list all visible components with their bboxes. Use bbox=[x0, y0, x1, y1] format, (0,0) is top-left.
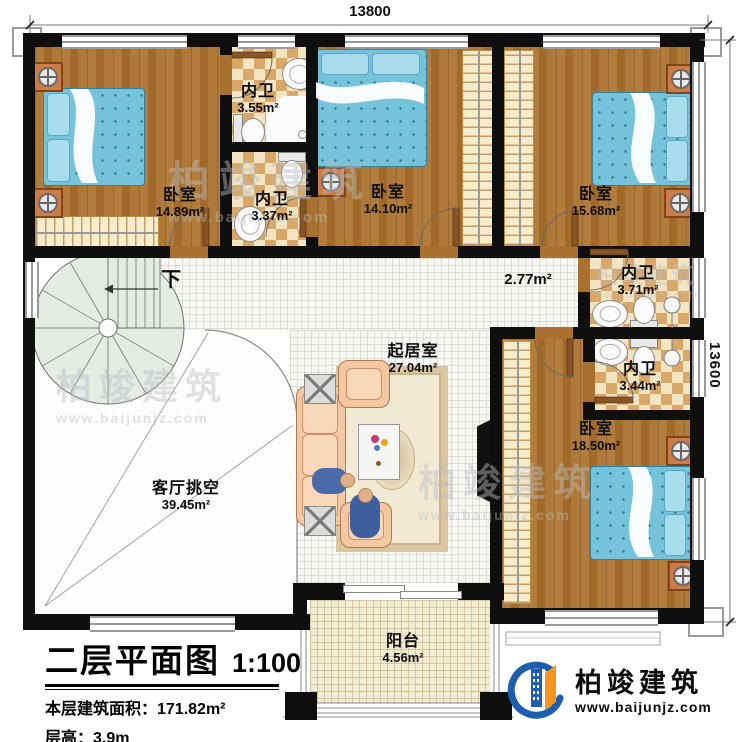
wall bbox=[232, 142, 306, 152]
nightstand bbox=[316, 167, 346, 197]
wall bbox=[306, 47, 318, 197]
wall bbox=[583, 410, 704, 420]
wall bbox=[578, 246, 590, 254]
brand-website: www.baijunjz.com bbox=[575, 699, 712, 715]
room-label-living: 起居室 27.04m² bbox=[387, 344, 438, 375]
side-table bbox=[304, 374, 336, 404]
door-threshold bbox=[420, 246, 458, 258]
living-void-area bbox=[33, 330, 297, 614]
window bbox=[90, 616, 235, 632]
wall bbox=[208, 246, 420, 258]
room-label-bath-b: 内卫 3.37m² bbox=[251, 192, 292, 223]
pillow bbox=[372, 53, 420, 75]
door-threshold bbox=[578, 254, 590, 292]
window bbox=[692, 478, 706, 560]
title-underline bbox=[45, 684, 279, 690]
drawing-scale: 1:100 bbox=[232, 648, 301, 679]
brand-name: 柏竣建筑 bbox=[575, 669, 712, 699]
watermark: 柏竣建筑 www.baijunjz.com bbox=[56, 358, 228, 426]
room-label-bath-a: 内卫 3.55m² bbox=[237, 84, 278, 115]
room-label-bedroom-top-right: 卧室 15.68m² bbox=[572, 187, 620, 218]
pillow bbox=[664, 514, 686, 556]
toilet bbox=[633, 296, 655, 324]
pillow bbox=[666, 96, 688, 138]
brand-logo-icon bbox=[505, 660, 567, 724]
wall bbox=[220, 47, 232, 55]
room-label-bath-d: 内卫 3.44m² bbox=[619, 362, 660, 393]
dimension-right: 13600 bbox=[706, 342, 723, 389]
wall bbox=[220, 95, 232, 246]
window bbox=[692, 62, 706, 212]
room-label-balcony: 阳台 4.56m² bbox=[382, 634, 423, 665]
person-head bbox=[358, 488, 373, 503]
window bbox=[545, 610, 658, 626]
sink bbox=[592, 300, 628, 328]
dimension-top: 13800 bbox=[330, 3, 410, 20]
floor-area-text: 本层建筑面积：171.82m² bbox=[45, 695, 301, 719]
window bbox=[345, 35, 468, 49]
wall bbox=[573, 327, 704, 339]
coffee-table bbox=[358, 424, 400, 480]
window-sill-ledge bbox=[506, 632, 660, 645]
pillow bbox=[47, 139, 70, 182]
room-label-bath-c: 内卫 3.71m² bbox=[617, 266, 658, 297]
brand-logo: 柏竣建筑 www.baijunjz.com bbox=[505, 660, 712, 724]
wall bbox=[492, 47, 504, 246]
drawing-title: 二层平面图 bbox=[45, 634, 220, 682]
room-label-bedroom-top-left: 卧室 14.89m² bbox=[156, 188, 204, 219]
floor-plan-canvas: 柏竣建筑 www.baijunjz.com 柏竣建筑 www.baijunjz.… bbox=[0, 0, 750, 742]
door-threshold bbox=[583, 362, 595, 402]
flower-decor bbox=[371, 435, 379, 443]
floor-height-text: 层高：3.9m bbox=[45, 724, 301, 742]
closet-bedroom-bottom-right bbox=[503, 340, 531, 604]
window bbox=[25, 262, 39, 318]
door-threshold bbox=[306, 197, 318, 237]
wall bbox=[23, 246, 170, 258]
table-decor bbox=[376, 461, 381, 466]
room-label-bedroom-bottom-right: 卧室 18.50m² bbox=[572, 422, 620, 453]
flower-decor bbox=[374, 445, 380, 451]
window bbox=[62, 35, 187, 49]
wall bbox=[458, 246, 540, 258]
closet-bedroom-top-right bbox=[504, 50, 534, 246]
pillow bbox=[47, 93, 70, 136]
armchair-cushion bbox=[346, 368, 382, 400]
wardrobe-bedroom-top-left bbox=[35, 216, 159, 248]
nightstand bbox=[33, 188, 63, 218]
room-label-hallway-area: 2.77m² bbox=[504, 272, 552, 289]
door-threshold bbox=[540, 246, 578, 258]
stair-down-label: 下 bbox=[161, 263, 181, 292]
person-head bbox=[340, 473, 355, 488]
pillow bbox=[321, 53, 369, 75]
window bbox=[543, 35, 660, 49]
nightstand bbox=[33, 62, 63, 92]
sliding-door-panel bbox=[343, 585, 405, 593]
wall bbox=[583, 339, 595, 362]
wall bbox=[578, 246, 704, 258]
window bbox=[692, 340, 706, 397]
door-threshold bbox=[220, 55, 232, 95]
door-threshold bbox=[170, 246, 208, 258]
wall bbox=[293, 583, 307, 630]
wall bbox=[578, 292, 590, 330]
door-threshold bbox=[535, 327, 573, 339]
window bbox=[238, 35, 295, 49]
room-label-void: 客厅挑空 39.45m² bbox=[152, 481, 220, 512]
room-label-bedroom-top-middle: 卧室 14.10m² bbox=[364, 185, 412, 216]
sliding-door-panel bbox=[400, 591, 462, 599]
closet-bedroom-top-middle bbox=[462, 50, 494, 246]
tv bbox=[477, 420, 490, 502]
wall bbox=[306, 237, 318, 246]
pillow bbox=[664, 470, 686, 512]
wall bbox=[23, 33, 35, 630]
window bbox=[692, 258, 706, 318]
side-table bbox=[304, 506, 336, 536]
toilet bbox=[281, 160, 303, 188]
title-block: 二层平面图 1:100 本层建筑面积：171.82m² 层高：3.9m bbox=[45, 634, 301, 742]
pillow bbox=[666, 140, 688, 182]
wall bbox=[490, 327, 502, 608]
flower-decor bbox=[381, 439, 388, 446]
floor-hallway bbox=[140, 258, 578, 330]
